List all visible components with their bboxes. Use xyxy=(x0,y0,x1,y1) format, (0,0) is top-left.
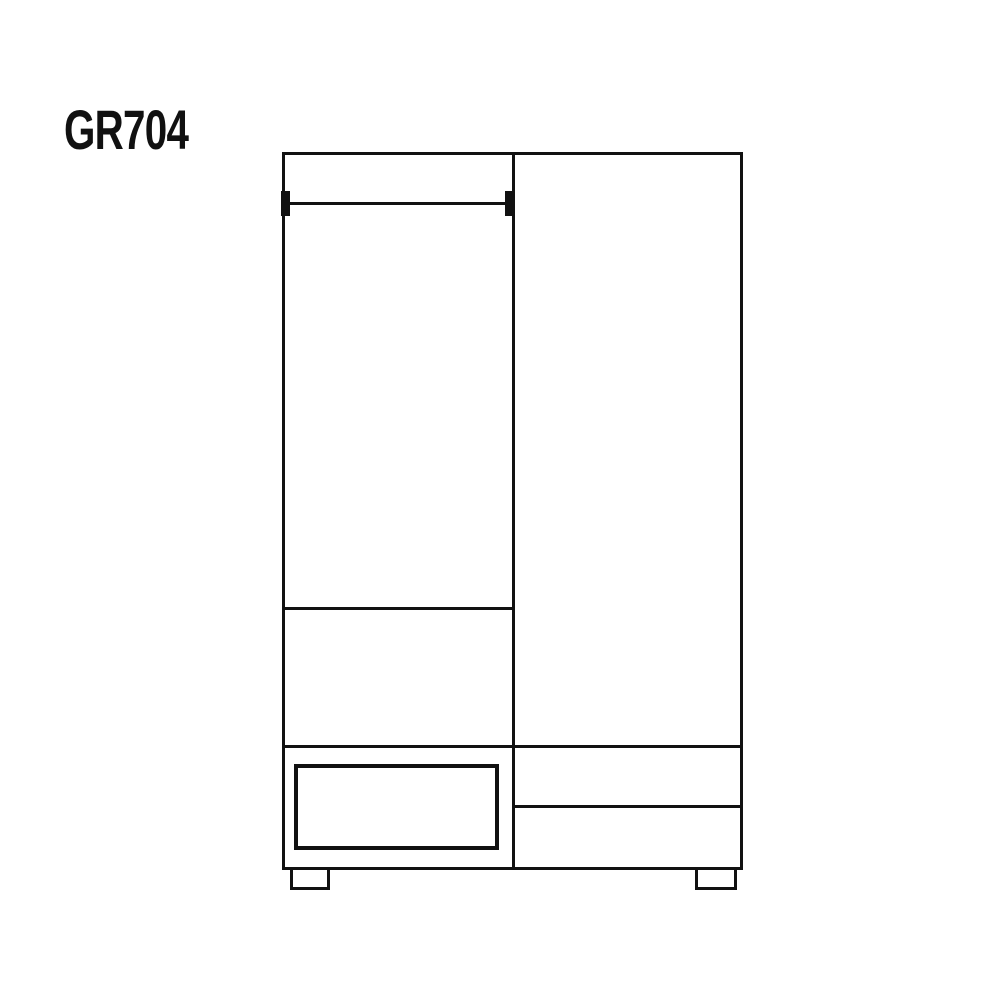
shelf-line xyxy=(285,607,512,610)
center-divider-line xyxy=(512,155,515,867)
page-canvas: { "theme": { "bg-color": "#ffffff", "lin… xyxy=(0,0,1000,1000)
product-code-label: GR704 xyxy=(64,102,188,158)
drawer-section-top-line xyxy=(285,745,740,748)
rail-end-cap-left xyxy=(281,191,290,216)
rail-end-cap-right xyxy=(505,191,514,216)
left-drawer-front xyxy=(294,764,499,850)
cabinet-outline xyxy=(282,152,743,870)
hanging-rail xyxy=(288,202,507,205)
foot-left xyxy=(290,869,330,890)
foot-right xyxy=(695,869,737,890)
right-drawer-divider-line xyxy=(515,805,740,808)
